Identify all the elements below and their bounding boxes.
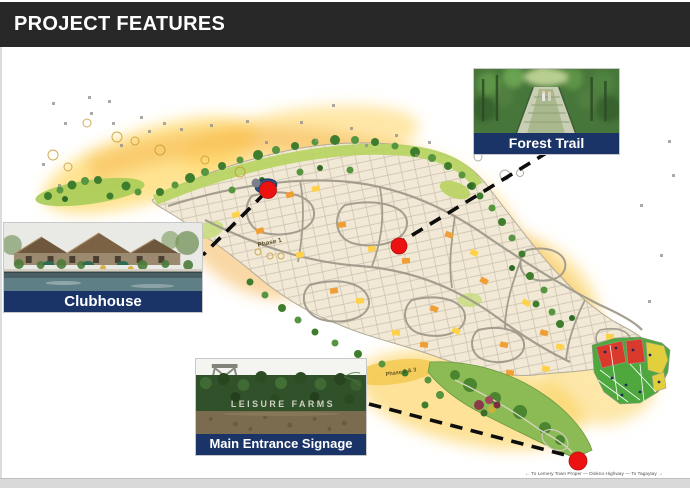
page-title: PROJECT FEATURES — [14, 13, 225, 36]
clubhouse-label: Clubhouse — [4, 291, 202, 312]
slide: Phase 1 Phase 2 & 3 ← To Lemery Town Pro… — [0, 0, 690, 488]
entrance-sign-text: LEISURE FARMS — [231, 399, 335, 409]
marker-main-entrance — [569, 452, 587, 470]
callout-main-entrance: LEISURE FARMS Main Entrance Signage — [195, 358, 367, 456]
main-entrance-label: Main Entrance Signage — [196, 434, 366, 455]
callout-forest-trail: Forest Trail — [473, 68, 620, 155]
highway-caption: ← To Lemery Town Proper — Diokno Highway… — [525, 471, 663, 477]
header-bar: PROJECT FEATURES — [0, 2, 690, 47]
clubhouse-photo — [4, 223, 202, 291]
callout-clubhouse: Clubhouse — [3, 222, 203, 313]
marker-clubhouse — [260, 182, 277, 199]
map-lake-edge — [252, 179, 261, 188]
slide-footer-strip — [0, 478, 690, 488]
slide-left-edge — [0, 47, 2, 479]
forest-trail-photo — [474, 69, 619, 133]
forest-trail-label: Forest Trail — [474, 133, 619, 154]
main-entrance-photo: LEISURE FARMS — [196, 359, 366, 434]
marker-forest-trail — [391, 238, 407, 254]
